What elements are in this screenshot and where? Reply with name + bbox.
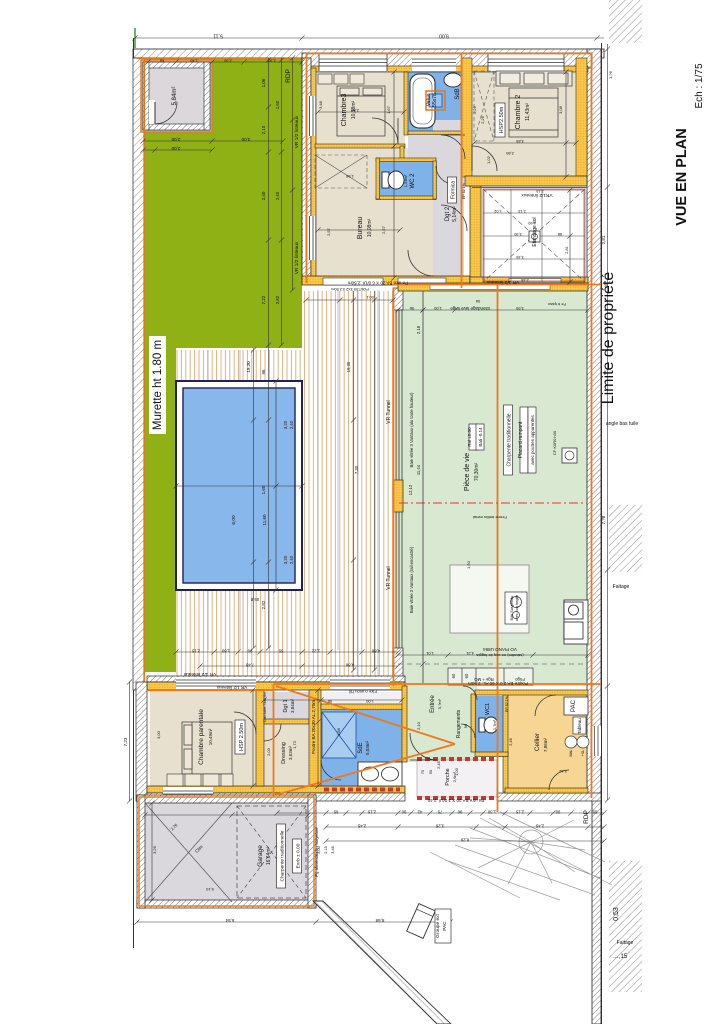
svg-text:Charpente traditionnelle: Charpente traditionnelle bbox=[280, 830, 286, 881]
svg-text:Entrée: Entrée bbox=[430, 695, 436, 713]
svg-text:2,00: 2,00 bbox=[171, 146, 180, 151]
svg-text:2,15: 2,15 bbox=[367, 810, 376, 815]
svg-text:1,60: 1,60 bbox=[261, 485, 266, 494]
svg-text:65: 65 bbox=[592, 810, 597, 815]
svg-text:Poutre BA 2 0 X 60 AL. 2,50m: Poutre BA 2 0 X 60 AL. 2,50m bbox=[468, 681, 528, 686]
svg-text:Poutre BA 20x30 AL.2,70m: Poutre BA 20x30 AL.2,70m bbox=[311, 700, 316, 754]
svg-text:RDP: RDP bbox=[583, 810, 590, 824]
svg-text:Cellier: Cellier bbox=[534, 732, 541, 751]
svg-text:Chambre3: Chambre3 bbox=[341, 94, 348, 127]
svg-text:90: 90 bbox=[457, 810, 462, 815]
svg-text:1,67: 1,67 bbox=[386, 105, 391, 114]
svg-text:3,48: 3,48 bbox=[318, 100, 323, 109]
svg-text:RDP: RDP bbox=[285, 69, 292, 83]
svg-text:55: 55 bbox=[278, 649, 283, 654]
svg-text:90: 90 bbox=[247, 649, 252, 654]
svg-text:Garage: Garage bbox=[257, 845, 264, 867]
svg-text:2,03: 2,03 bbox=[266, 747, 271, 756]
svg-text:5,14m²: 5,14m² bbox=[452, 206, 458, 222]
svg-text:VR Tunnel: VR Tunnel bbox=[386, 400, 392, 423]
svg-text:3,28: 3,28 bbox=[435, 824, 444, 829]
svg-text:2,57: 2,57 bbox=[381, 225, 386, 234]
svg-text:VR 1/2 linteaux: VR 1/2 linteaux bbox=[294, 115, 300, 148]
svg-text:HSP2.50m: HSP2.50m bbox=[499, 106, 505, 133]
svg-text:VUE EN PLAN: VUE EN PLAN bbox=[674, 128, 690, 226]
svg-text:4,21: 4,21 bbox=[465, 651, 474, 656]
svg-text:2,45: 2,45 bbox=[357, 824, 366, 829]
svg-text:3,00: 3,00 bbox=[317, 846, 321, 853]
svg-text:avec coq fragile: avec coq fragile bbox=[515, 595, 519, 622]
svg-text:Po utre BA 20 X 3 0/U/ .2,40: Po utre BA 20 X 3 0/U/ .2,40 bbox=[427, 798, 484, 803]
svg-text:Placard rampant: Placard rampant bbox=[518, 421, 524, 458]
svg-text:2,45: 2,45 bbox=[436, 760, 441, 769]
svg-text:avec poutres apparentes: avec poutres apparentes bbox=[530, 414, 535, 464]
svg-text:WC1: WC1 bbox=[485, 703, 491, 715]
svg-text:2,30: 2,30 bbox=[224, 59, 231, 63]
svg-text:Etendage lave linge: Etendage lave linge bbox=[450, 306, 490, 311]
svg-text:3,26: 3,26 bbox=[152, 845, 157, 854]
svg-text:Bâti Suspendu: Bâti Suspendu bbox=[510, 596, 514, 621]
svg-text:2,15: 2,15 bbox=[261, 125, 266, 134]
svg-text:5,10: 5,10 bbox=[205, 887, 214, 892]
svg-text:Limite de propriété: Limite de propriété bbox=[600, 272, 617, 405]
svg-text:1,00: 1,00 bbox=[433, 306, 442, 311]
svg-text:1,01: 1,01 bbox=[425, 651, 434, 656]
svg-text:Baie vitrée 3 Vantaux (rail en: Baie vitrée 3 Vantaux (rail encastré) bbox=[409, 546, 414, 613]
svg-text:10,08m²: 10,08m² bbox=[367, 218, 373, 237]
svg-text:EP 82 1%: EP 82 1% bbox=[505, 695, 509, 712]
svg-text:Faitage: Faitage bbox=[613, 584, 630, 590]
svg-text:Dressing: Dressing bbox=[281, 742, 287, 764]
svg-text:SdB: SdB bbox=[455, 88, 461, 99]
svg-text:2,15: 2,15 bbox=[536, 189, 543, 193]
svg-text:11,44: 11,44 bbox=[416, 464, 421, 475]
svg-text:PAC: PAC bbox=[442, 921, 448, 931]
svg-text:2,40: 2,40 bbox=[261, 191, 266, 200]
svg-text:1,30: 1,30 bbox=[487, 810, 496, 815]
svg-text:2,26: 2,26 bbox=[480, 115, 485, 124]
svg-text:1,60: 1,60 bbox=[528, 221, 535, 225]
svg-text:3,20: 3,20 bbox=[283, 420, 288, 429]
svg-text:96: 96 bbox=[409, 306, 414, 311]
svg-text:11,60: 11,60 bbox=[262, 514, 267, 525]
svg-text:2,40: 2,40 bbox=[289, 420, 294, 429]
svg-text:4,88: 4,88 bbox=[371, 649, 380, 654]
svg-text:3,90: 3,90 bbox=[514, 232, 521, 236]
svg-text:Rnl ±0.00: Rnl ±0.00 bbox=[467, 427, 472, 447]
svg-text:1,80: 1,80 bbox=[221, 649, 230, 654]
svg-text:1,?6: 1,?6 bbox=[608, 70, 613, 79]
svg-text:12,12: 12,12 bbox=[408, 484, 413, 495]
svg-text:2,15: 2,15 bbox=[191, 649, 200, 654]
svg-text:2,30: 2,30 bbox=[268, 59, 275, 63]
svg-text:2,57: 2,57 bbox=[326, 227, 331, 236]
svg-text:1,7m²: 1,7m² bbox=[492, 719, 497, 730]
svg-text:3,95: 3,95 bbox=[515, 306, 524, 311]
svg-text:+SL: +SL bbox=[581, 750, 585, 757]
svg-text:3,45: 3,45 bbox=[516, 255, 523, 259]
svg-text:Ech : 1/75: Ech : 1/75 bbox=[694, 63, 705, 108]
svg-text:EP 82 1%: EP 82 1% bbox=[462, 182, 466, 199]
svg-text:60: 60 bbox=[451, 673, 456, 678]
svg-text:65: 65 bbox=[333, 810, 338, 815]
svg-text:Chambre 2: Chambre 2 bbox=[515, 95, 522, 130]
svg-text:PAC: PAC bbox=[571, 699, 577, 712]
svg-text:7,86m²: 7,86m² bbox=[543, 738, 548, 753]
svg-text:Pièce de vie: Pièce de vie bbox=[464, 453, 471, 491]
svg-text:2,00: 2,00 bbox=[171, 137, 180, 142]
svg-text:5,11: 5,11 bbox=[213, 33, 223, 39]
svg-text:1,73: 1,73 bbox=[292, 740, 297, 749]
svg-text:2,40: 2,40 bbox=[289, 555, 294, 564]
svg-text:Charpente traditionnelle: Charpente traditionnelle bbox=[507, 413, 513, 466]
svg-text:4,88: 4,88 bbox=[345, 663, 354, 668]
svg-text:1,88: 1,88 bbox=[336, 727, 341, 736]
svg-text:2,42: 2,42 bbox=[558, 769, 567, 774]
svg-text:8,29: 8,29 bbox=[460, 838, 469, 843]
svg-text:CF K0R0 h30: CF K0R0 h30 bbox=[552, 430, 557, 455]
svg-text:1,54m²: 1,54m² bbox=[403, 174, 408, 187]
svg-text:50: 50 bbox=[428, 769, 433, 774]
svg-text:Tableau: Tableau bbox=[577, 718, 582, 734]
svg-text:2,82: 2,82 bbox=[275, 295, 280, 304]
svg-text:angle bas tuile: angle bas tuile bbox=[606, 421, 638, 427]
svg-text:7,45: 7,45 bbox=[245, 663, 254, 668]
svg-text:Murette ht 1.80 m: Murette ht 1.80 m bbox=[152, 340, 164, 430]
svg-text:2,18: 2,18 bbox=[416, 325, 421, 334]
svg-text:Dgt 1: Dgt 1 bbox=[283, 699, 289, 712]
svg-text:MàL: MàL bbox=[569, 750, 573, 757]
svg-text:Faitage: Faitage bbox=[617, 940, 634, 946]
svg-text:60: 60 bbox=[464, 673, 469, 678]
svg-text:7,22: 7,22 bbox=[261, 295, 266, 304]
svg-text:3,84m²: 3,84m² bbox=[290, 699, 295, 714]
svg-text:96: 96 bbox=[327, 699, 332, 704]
svg-text:Cab toilet 73x2.0m: Cab toilet 73x2.0m bbox=[263, 692, 267, 722]
svg-text:1,60: 1,60 bbox=[275, 100, 280, 109]
svg-text:2,82: 2,82 bbox=[261, 600, 266, 609]
svg-text:16,64m²: 16,64m² bbox=[266, 846, 272, 865]
svg-text:Chambre parentale: Chambre parentale bbox=[198, 709, 205, 765]
svg-text:42: 42 bbox=[417, 810, 422, 815]
svg-text:11,43m²: 11,43m² bbox=[525, 103, 531, 121]
svg-text:1,00: 1,00 bbox=[454, 767, 459, 776]
svg-text:6,00: 6,00 bbox=[231, 515, 237, 525]
svg-text:2,80: 2,80 bbox=[505, 151, 514, 156]
svg-text:Fixe o usou l’til: Fixe o usou l’til bbox=[349, 689, 377, 694]
svg-text:90: 90 bbox=[555, 810, 560, 815]
svg-text:2,10: 2,10 bbox=[416, 721, 421, 730]
svg-text:VO PIANO U894: VO PIANO U894 bbox=[483, 647, 517, 652]
svg-text:5,03m²: 5,03m² bbox=[365, 741, 370, 756]
svg-text:1,50: 1,50 bbox=[466, 560, 471, 569]
svg-text:PO6T.09 3X2 0.2,50m: PO6T.09 3X2 0.2,50m bbox=[331, 287, 368, 291]
svg-text:19,30: 19,30 bbox=[246, 361, 251, 373]
svg-text:Ferme treillis metal: Ferme treillis metal bbox=[473, 515, 507, 520]
svg-text:VR 1/2 linteaux: VR 1/2 linteaux bbox=[183, 671, 216, 677]
svg-text:2,26: 2,26 bbox=[472, 105, 477, 114]
svg-text:2,48: 2,48 bbox=[521, 278, 528, 282]
svg-text:Porche: Porche bbox=[445, 768, 451, 785]
svg-text:19,30: 19,30 bbox=[346, 361, 351, 372]
svg-text:SdE: SdE bbox=[358, 742, 364, 753]
svg-text:3,08: 3,08 bbox=[558, 105, 563, 114]
svg-text:8,58: 8,58 bbox=[375, 918, 384, 923]
svg-text:Formica: Formica bbox=[451, 181, 457, 199]
svg-text:1,02: 1,02 bbox=[486, 155, 491, 164]
svg-text:Baie vitrée 3 Vantaux (alu tou: Baie vitrée 3 Vantaux (alu toute hauteur… bbox=[409, 392, 414, 467]
svg-text:96: 96 bbox=[261, 369, 266, 375]
svg-text:3,00: 3,00 bbox=[241, 137, 250, 142]
svg-text:1,40: 1,40 bbox=[190, 59, 197, 63]
svg-text:VR Tunnel: VR Tunnel bbox=[386, 566, 392, 589]
svg-text:5,54: 5,54 bbox=[225, 918, 234, 923]
svg-text:Groupe ext: Groupe ext bbox=[435, 913, 441, 937]
svg-text:06: 06 bbox=[475, 299, 480, 304]
svg-text:9,00: 9,00 bbox=[439, 33, 449, 39]
svg-text:0,53: 0,53 bbox=[613, 907, 620, 921]
svg-text:3,00: 3,00 bbox=[156, 730, 161, 739]
svg-text:(rabattre) ne coq de faggia: (rabattre) ne coq de faggia bbox=[476, 653, 524, 658]
svg-text:1,98: 1,98 bbox=[345, 174, 354, 179]
svg-text:2,46: 2,46 bbox=[508, 737, 513, 746]
svg-text:1,02: 1,02 bbox=[494, 209, 501, 213]
svg-text:HSP 2.50m: HSP 2.50m bbox=[239, 723, 245, 751]
svg-text:2,80: 2,80 bbox=[350, 108, 359, 113]
svg-text:00,1: 00,1 bbox=[365, 295, 374, 300]
svg-text:VR 1/2 linteaux: VR 1/2 linteaux bbox=[486, 279, 519, 285]
svg-text:1,06: 1,06 bbox=[261, 78, 266, 87]
svg-text:VR 1/2 linteaux: VR 1/2 linteaux bbox=[216, 685, 247, 690]
svg-text:75: 75 bbox=[437, 810, 442, 815]
svg-text:1,22: 1,22 bbox=[311, 649, 320, 654]
svg-text:7,30: 7,30 bbox=[354, 465, 359, 474]
svg-text:2,40: 2,40 bbox=[275, 191, 280, 200]
svg-text:3,20: 3,20 bbox=[283, 555, 288, 564]
svg-text:Fe b tplao: Fe b tplao bbox=[547, 302, 566, 307]
svg-text:5,84m²: 5,84m² bbox=[172, 87, 178, 106]
svg-text:96: 96 bbox=[463, 723, 468, 728]
svg-text:3,46: 3,46 bbox=[331, 846, 335, 853]
svg-text:55x78: 55x78 bbox=[432, 93, 438, 107]
svg-text:88: 88 bbox=[558, 232, 562, 236]
svg-text:68: 68 bbox=[160, 59, 164, 63]
svg-text:1,00: 1,00 bbox=[365, 699, 374, 704]
svg-text:…,15: …,15 bbox=[613, 954, 628, 960]
svg-text:2,45: 2,45 bbox=[535, 824, 544, 829]
svg-text:2,81: 2,81 bbox=[565, 246, 569, 253]
svg-text:90: 90 bbox=[401, 810, 406, 815]
svg-text:2,15: 2,15 bbox=[324, 846, 328, 853]
svg-text:7,23: 7,23 bbox=[123, 737, 128, 746]
svg-text:2,15: 2,15 bbox=[518, 209, 525, 213]
svg-text:Dgt 2: Dgt 2 bbox=[445, 206, 451, 221]
svg-text:70,30m²: 70,30m² bbox=[474, 462, 480, 481]
svg-text:Bureau: Bureau bbox=[357, 217, 364, 240]
svg-text:3,85: 3,85 bbox=[515, 139, 524, 144]
svg-text:10,49m²: 10,49m² bbox=[208, 728, 213, 745]
svg-text:VR 1/2 linteaux: VR 1/2 linteaux bbox=[294, 241, 300, 274]
svg-text:Rangements: Rangements bbox=[456, 709, 462, 738]
svg-text:2,15: 2,15 bbox=[515, 810, 524, 815]
svg-text:05,8: 05,8 bbox=[250, 597, 259, 602]
svg-text:Bati -0.14: Bati -0.14 bbox=[478, 427, 483, 447]
svg-text:WC 2: WC 2 bbox=[410, 173, 416, 189]
svg-text:Po utre BA 20 X 6 0/U/ .2,50m: Po utre BA 20 X 6 0/U/ .2,50m bbox=[348, 281, 409, 286]
svg-text:5,?m²: 5,?m² bbox=[437, 698, 442, 709]
svg-text:Enrb ± 0.00: Enrb ± 0.00 bbox=[296, 843, 302, 868]
svg-text:75: 75 bbox=[420, 769, 425, 774]
